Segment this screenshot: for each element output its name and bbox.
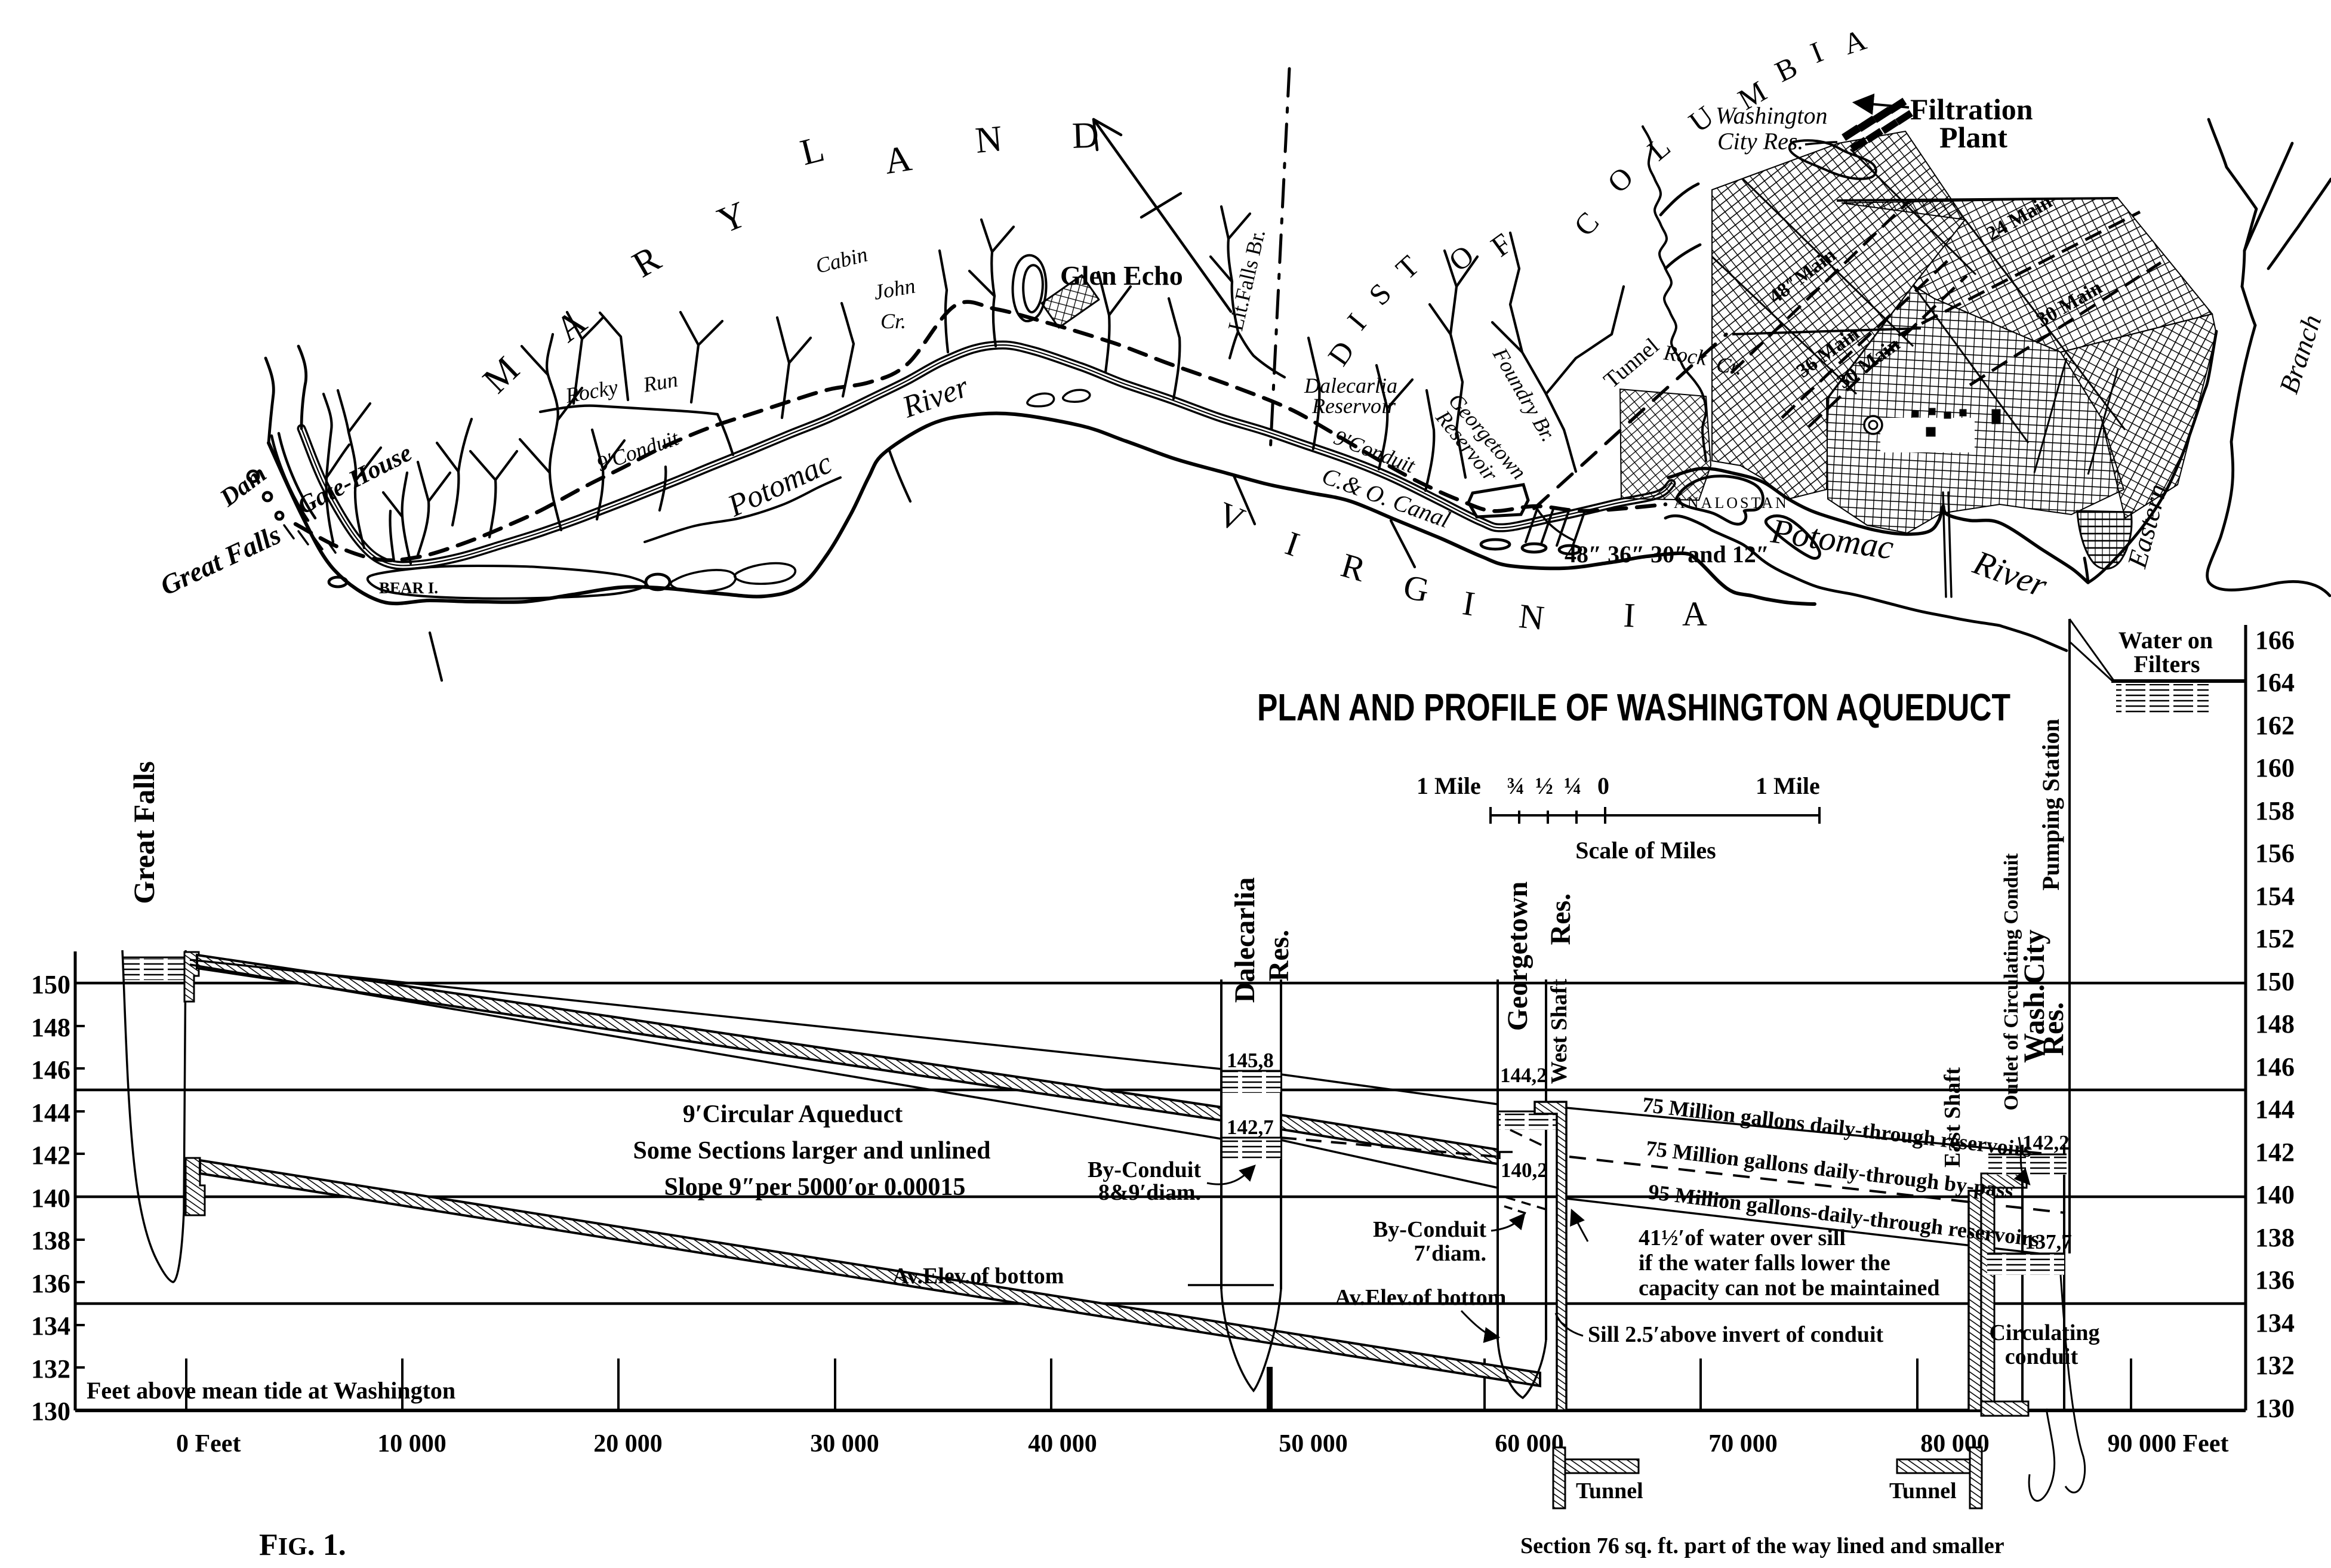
svg-text:Feet above mean tide at Washin: Feet above mean tide at Washington — [87, 1377, 455, 1404]
svg-text:D: D — [1071, 115, 1100, 156]
svg-text:20 000: 20 000 — [593, 1430, 663, 1458]
svg-text:158: 158 — [2255, 796, 2295, 825]
svg-text:Great Falls: Great Falls — [127, 761, 161, 904]
svg-text:70 000: 70 000 — [1708, 1430, 1778, 1458]
svg-text:41½′of water over sill: 41½′of water over sill — [1639, 1225, 1846, 1250]
svg-text:145,8: 145,8 — [1227, 1049, 1274, 1072]
svg-text:Tunnel: Tunnel — [1576, 1478, 1643, 1504]
svg-text:152: 152 — [2255, 924, 2295, 953]
svg-text:144,2: 144,2 — [1500, 1064, 1547, 1087]
svg-text:144: 144 — [31, 1098, 70, 1128]
svg-text:½: ½ — [1535, 772, 1553, 799]
svg-text:148: 148 — [31, 1013, 70, 1042]
svg-text:164: 164 — [2255, 668, 2295, 697]
svg-text:BEAR I.: BEAR I. — [379, 579, 438, 597]
svg-text:140,2: 140,2 — [1501, 1159, 1548, 1182]
svg-text:Washington: Washington — [1716, 102, 1827, 129]
svg-text:90 000 Feet: 90 000 Feet — [2108, 1430, 2229, 1458]
svg-text:Section 76 sq. ft. part of the: Section 76 sq. ft. part of the way lined… — [1520, 1533, 2004, 1558]
svg-text:N: N — [1517, 596, 1546, 637]
svg-text:By-Conduit: By-Conduit — [1373, 1217, 1486, 1242]
svg-text:144: 144 — [2255, 1095, 2295, 1124]
svg-text:Res.: Res. — [2036, 1002, 2070, 1056]
svg-text:150: 150 — [31, 970, 70, 999]
svg-text:Slope 9″per 5000′or 0.00015: Slope 9″per 5000′or 0.00015 — [664, 1173, 966, 1201]
svg-text:Georgetown: Georgetown — [1502, 882, 1534, 1031]
svg-text:132: 132 — [2255, 1351, 2295, 1380]
svg-text:¾: ¾ — [1507, 772, 1525, 799]
svg-text:9′Circular Aqueduct: 9′Circular Aqueduct — [683, 1101, 903, 1128]
svg-text:142: 142 — [2255, 1138, 2295, 1167]
svg-text:Res.: Res. — [1545, 894, 1576, 945]
svg-text:130: 130 — [31, 1397, 70, 1426]
svg-text:Some Sections larger and unlin: Some Sections larger and unlined — [633, 1137, 991, 1165]
svg-text:PLAN AND PROFILE OF WASHINGTON: PLAN AND PROFILE OF WASHINGTON AQUEDUCT — [1257, 686, 2010, 729]
svg-text:10 000: 10 000 — [377, 1430, 447, 1458]
svg-text:142,7: 142,7 — [1227, 1116, 1274, 1139]
svg-text:¼: ¼ — [1564, 772, 1582, 799]
svg-text:8&9′diam.: 8&9′diam. — [1098, 1180, 1201, 1205]
svg-text:146: 146 — [2255, 1052, 2295, 1082]
svg-text:Glen Echo: Glen Echo — [1060, 260, 1183, 291]
svg-text:Scale of Miles: Scale of Miles — [1575, 837, 1716, 864]
svg-text:140: 140 — [31, 1184, 70, 1213]
svg-text:156: 156 — [2255, 839, 2295, 868]
svg-text:0 Feet: 0 Feet — [176, 1430, 241, 1458]
svg-text:30 000: 30 000 — [810, 1430, 879, 1458]
svg-text:FIG. 1.: FIG. 1. — [259, 1528, 346, 1562]
svg-text:7′diam.: 7′diam. — [1414, 1241, 1486, 1266]
svg-text:134: 134 — [2255, 1308, 2295, 1338]
svg-text:162: 162 — [2255, 711, 2295, 740]
svg-text:Av.Elev.of bottom: Av.Elev.of bottom — [892, 1264, 1064, 1289]
svg-text:154: 154 — [2255, 882, 2295, 911]
svg-text:I: I — [1622, 596, 1636, 635]
svg-text:Cr.: Cr. — [880, 309, 906, 333]
svg-text:148: 148 — [2255, 1009, 2295, 1039]
svg-text:Dalecarlia: Dalecarlia — [1229, 877, 1261, 1003]
svg-text:ANALOSTAN: ANALOSTAN — [1674, 494, 1789, 512]
svg-text:capacity can not be maintained: capacity can not be maintained — [1639, 1276, 1940, 1301]
svg-text:48″ 36″ 30″and 12″: 48″ 36″ 30″and 12″ — [1565, 541, 1769, 568]
svg-text:By-Conduit: By-Conduit — [1088, 1157, 1201, 1182]
svg-text:140: 140 — [2255, 1180, 2295, 1209]
svg-text:132: 132 — [31, 1354, 70, 1384]
svg-text:134: 134 — [31, 1311, 70, 1341]
svg-text:Pumping Station: Pumping Station — [2037, 719, 2064, 891]
svg-text:150: 150 — [2255, 967, 2295, 996]
svg-text:Res.: Res. — [1263, 930, 1295, 982]
svg-text:136: 136 — [2255, 1265, 2295, 1295]
svg-text:Av.Elev.of bottom: Av.Elev.of bottom — [1335, 1285, 1506, 1310]
svg-text:Reservoir: Reservoir — [1311, 394, 1396, 418]
svg-text:0: 0 — [1597, 772, 1609, 799]
svg-text:166: 166 — [2255, 626, 2295, 655]
svg-text:Tunnel: Tunnel — [1889, 1478, 1957, 1504]
svg-text:40 000: 40 000 — [1028, 1430, 1097, 1458]
svg-text:138: 138 — [2255, 1223, 2295, 1252]
svg-text:City Res.: City Res. — [1717, 128, 1803, 155]
svg-text:A: A — [1682, 594, 1707, 633]
svg-text:136: 136 — [31, 1269, 70, 1298]
svg-text:1 Mile: 1 Mile — [1756, 772, 1820, 799]
svg-text:Circulating: Circulating — [1989, 1320, 2099, 1345]
svg-text:Sill 2.5′above invert of condu: Sill 2.5′above invert of conduit — [1588, 1322, 1884, 1347]
svg-text:160: 160 — [2255, 753, 2295, 783]
svg-text:50 000: 50 000 — [1279, 1430, 1348, 1458]
svg-text:146: 146 — [31, 1055, 70, 1085]
svg-text:West Shaft: West Shaft — [1547, 979, 1572, 1085]
svg-text:Water on: Water on — [2118, 627, 2213, 654]
svg-text:138: 138 — [31, 1226, 70, 1255]
svg-text:if the water falls lower the: if the water falls lower the — [1639, 1250, 1890, 1276]
svg-text:142: 142 — [31, 1141, 70, 1170]
svg-text:N: N — [974, 118, 1004, 161]
svg-text:1 Mile: 1 Mile — [1417, 772, 1481, 799]
svg-text:Filters: Filters — [2133, 651, 2200, 677]
svg-text:130: 130 — [2255, 1394, 2295, 1423]
svg-text:Plant: Plant — [1939, 121, 2007, 154]
svg-text:Cr.: Cr. — [1715, 352, 1744, 380]
